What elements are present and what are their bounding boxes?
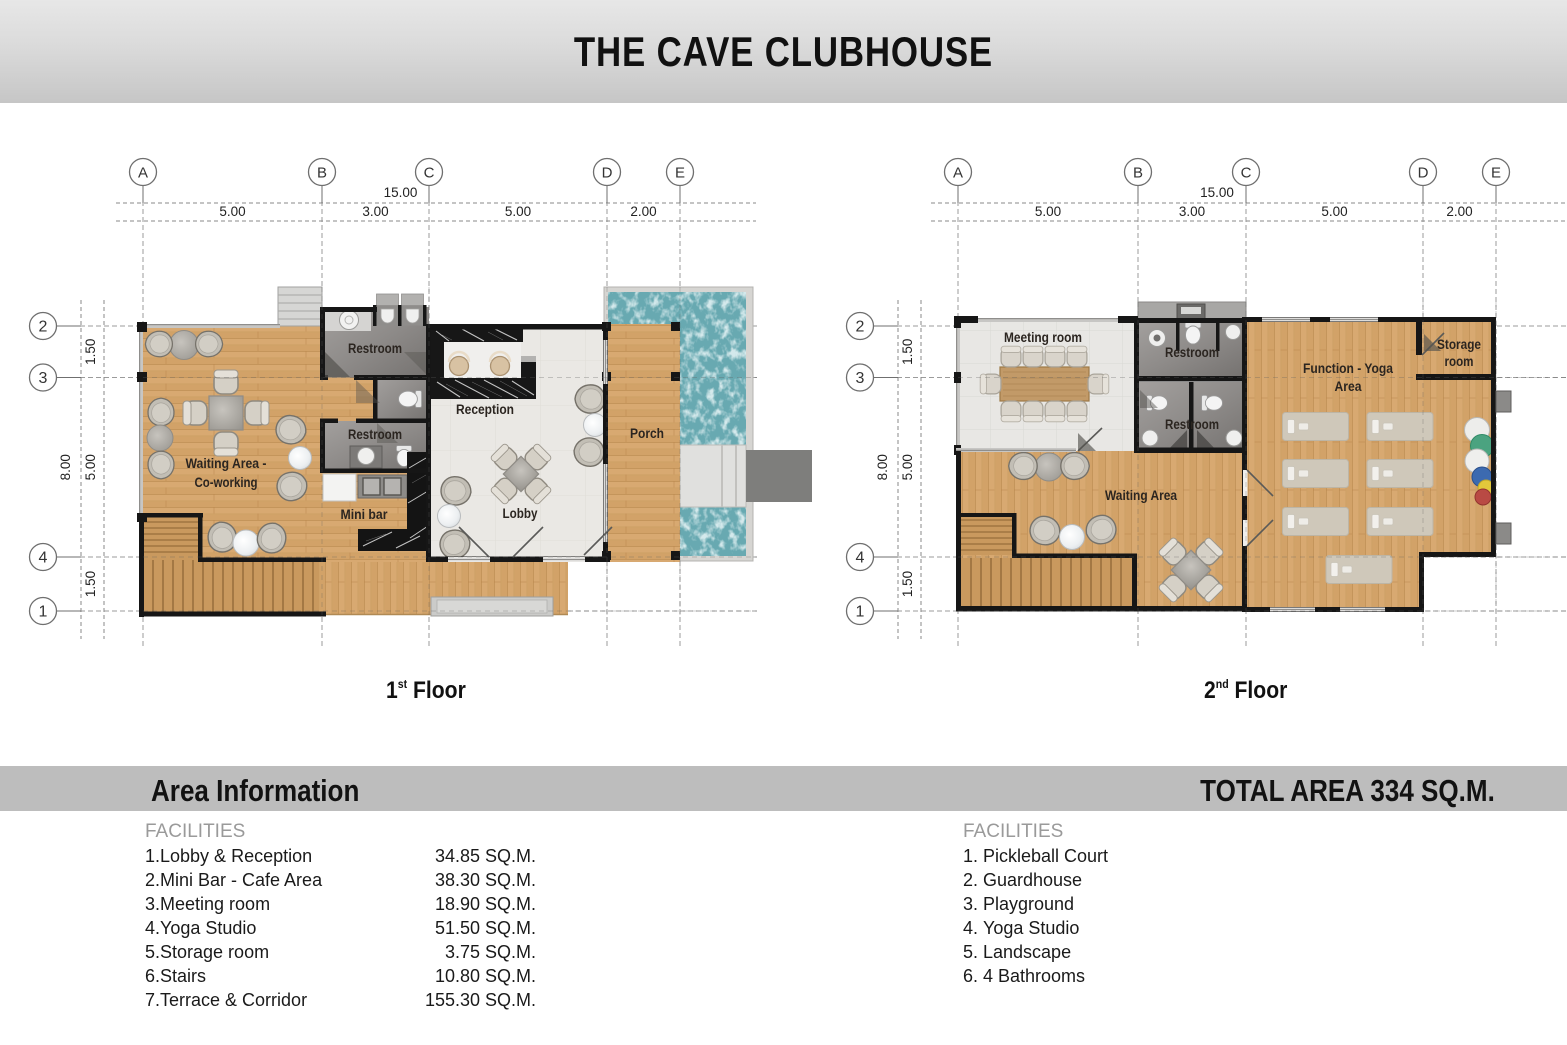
- svg-text:4: 4: [39, 550, 48, 567]
- svg-text:Restroom: Restroom: [348, 427, 402, 442]
- svg-text:Lobby: Lobby: [503, 506, 538, 521]
- svg-text:1: 1: [39, 604, 48, 621]
- svg-text:B: B: [317, 165, 327, 182]
- svg-text:5.00: 5.00: [219, 204, 245, 219]
- svg-text:8.00: 8.00: [875, 454, 890, 480]
- svg-text:Waiting Area: Waiting Area: [1105, 488, 1177, 503]
- svg-text:Function - Yoga: Function - Yoga: [1303, 361, 1393, 376]
- svg-text:Meeting room: Meeting room: [1004, 330, 1082, 345]
- svg-text:D: D: [602, 165, 613, 182]
- svg-text:15.00: 15.00: [1200, 185, 1234, 200]
- svg-text:5.00: 5.00: [1035, 204, 1061, 219]
- svg-text:B: B: [1133, 165, 1143, 182]
- svg-text:A: A: [953, 165, 963, 182]
- svg-text:D: D: [1418, 165, 1429, 182]
- svg-text:2: 2: [39, 319, 48, 336]
- svg-text:E: E: [675, 165, 685, 182]
- svg-text:Reception: Reception: [456, 402, 514, 417]
- svg-text:Restroom: Restroom: [1165, 417, 1219, 432]
- svg-text:C: C: [1241, 165, 1252, 182]
- svg-text:Waiting Area -: Waiting Area -: [186, 456, 267, 471]
- svg-text:4: 4: [856, 550, 865, 567]
- svg-text:Restroom: Restroom: [348, 341, 402, 356]
- svg-text:1.50: 1.50: [900, 339, 915, 365]
- svg-text:Area: Area: [1335, 379, 1362, 394]
- svg-text:3.00: 3.00: [1179, 204, 1205, 219]
- svg-text:Storage: Storage: [1437, 337, 1481, 352]
- svg-text:Porch: Porch: [630, 426, 664, 441]
- svg-text:A: A: [138, 165, 148, 182]
- svg-text:1.50: 1.50: [83, 339, 98, 365]
- svg-text:3: 3: [39, 370, 48, 387]
- svg-text:5.00: 5.00: [505, 204, 531, 219]
- svg-text:Restroom: Restroom: [1165, 345, 1219, 360]
- svg-text:1.50: 1.50: [900, 571, 915, 597]
- svg-text:1: 1: [856, 604, 865, 621]
- svg-text:C: C: [424, 165, 435, 182]
- svg-text:3: 3: [856, 370, 865, 387]
- svg-text:2.00: 2.00: [1446, 204, 1472, 219]
- svg-text:2: 2: [856, 319, 865, 336]
- svg-text:Mini bar: Mini bar: [341, 507, 389, 522]
- svg-text:E: E: [1491, 165, 1501, 182]
- svg-text:5.00: 5.00: [83, 454, 98, 480]
- svg-text:Co-working: Co-working: [195, 475, 258, 490]
- svg-text:1.50: 1.50: [83, 571, 98, 597]
- svg-text:room: room: [1445, 354, 1474, 369]
- svg-text:2.00: 2.00: [630, 204, 656, 219]
- svg-text:15.00: 15.00: [384, 185, 418, 200]
- svg-text:5.00: 5.00: [900, 454, 915, 480]
- svg-text:3.00: 3.00: [362, 204, 388, 219]
- svg-text:5.00: 5.00: [1321, 204, 1347, 219]
- svg-text:8.00: 8.00: [58, 454, 73, 480]
